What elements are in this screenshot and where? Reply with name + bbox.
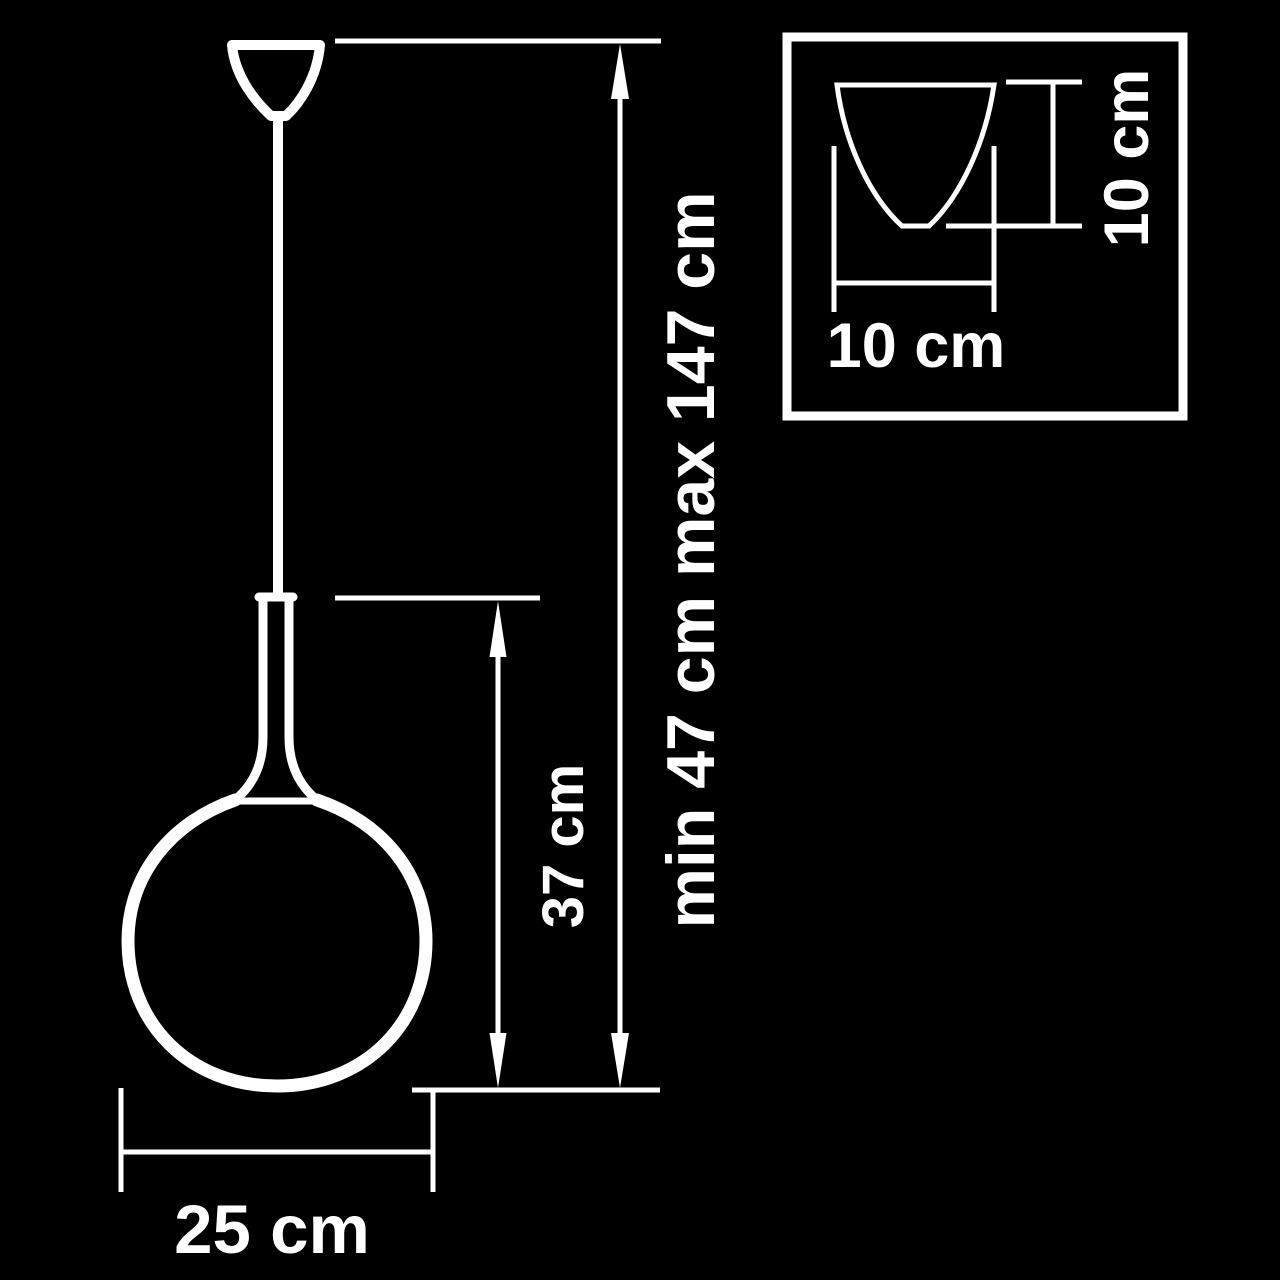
- dimension-shade-width: 25 cm: [121, 1088, 433, 1268]
- lamp-neck: [235, 597, 317, 800]
- arrowhead-up: [611, 44, 629, 99]
- arrowhead-down: [490, 1033, 507, 1088]
- pendant-lamp-dimension-diagram: min 47 cm max 147 cm 37 cm 25 cm: [0, 0, 1280, 1280]
- shade-width-label: 25 cm: [174, 1191, 370, 1268]
- ceiling-canopy: [232, 45, 320, 116]
- lamp-shade-globe: [128, 800, 426, 1086]
- overall-height-label: min 47 cm max 147 cm: [653, 191, 729, 928]
- canopy-detail-inset: 10 cm 10 cm: [787, 37, 1183, 416]
- inset-canopy-width-label: 10 cm: [827, 311, 1006, 381]
- arrowhead-down: [611, 1033, 629, 1088]
- inset-dimension-canopy-height: [946, 82, 1082, 226]
- diagram-canvas: min 47 cm max 147 cm 37 cm 25 cm: [0, 0, 1280, 1280]
- dimension-overall-height: min 47 cm max 147 cm: [335, 41, 729, 1088]
- shade-height-label: 37 cm: [531, 764, 596, 928]
- inset-canopy-height-label: 10 cm: [1092, 69, 1162, 248]
- inset-canopy-outline: [837, 85, 994, 226]
- arrowhead-up: [490, 601, 507, 657]
